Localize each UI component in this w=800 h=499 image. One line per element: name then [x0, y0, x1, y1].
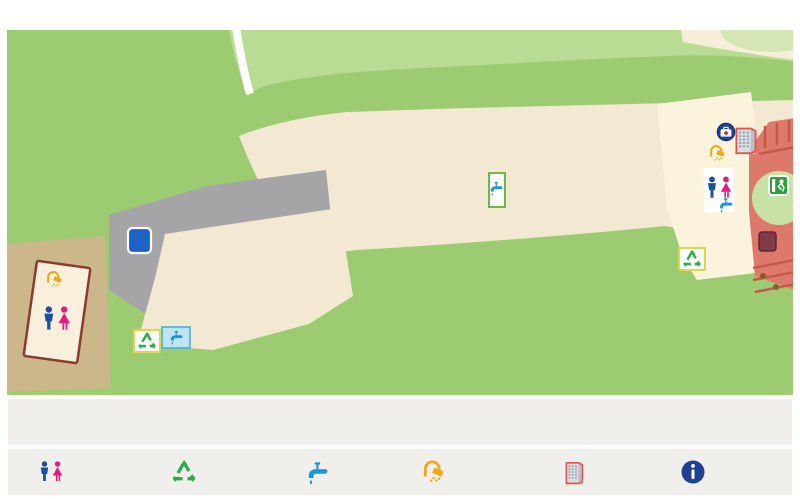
site-c-badge [573, 411, 596, 434]
shower-icon [421, 459, 447, 485]
campground-map [7, 30, 793, 395]
post [760, 273, 766, 279]
shelter-parking-sign [759, 232, 776, 251]
emergency-exit-icon [769, 176, 788, 195]
shower-building [24, 261, 91, 364]
post [773, 284, 779, 290]
legend-recycle [171, 459, 205, 485]
legend-faucet [304, 459, 338, 485]
site-b-badge [338, 411, 361, 434]
campground-map-page [0, 0, 800, 499]
faucet-icon [304, 459, 330, 485]
management-building-icon [561, 459, 587, 485]
legend-shower [421, 459, 455, 485]
legend-site-a [103, 411, 134, 434]
info-icon [680, 459, 706, 485]
legend-facilities [8, 449, 792, 495]
legend-info [680, 459, 714, 485]
toilet-icon [38, 459, 64, 485]
recycle-icon [171, 459, 197, 485]
legend-building [561, 459, 595, 485]
site-a-badge [103, 411, 126, 434]
management-building-icon [735, 129, 757, 155]
legend-site-b [338, 411, 369, 434]
legend-site-c [573, 411, 604, 434]
first-aid-icon [717, 123, 735, 141]
legend-toilet [38, 459, 72, 485]
parking-sign [128, 228, 151, 253]
legend-site-types [8, 399, 792, 445]
